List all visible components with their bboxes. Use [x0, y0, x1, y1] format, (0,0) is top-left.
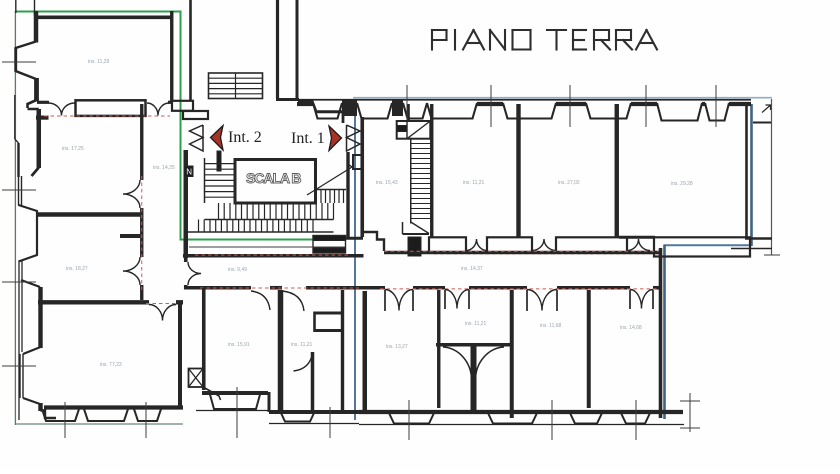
svg-text:ins. 9,49: ins. 9,49 [228, 267, 247, 273]
svg-text:Int. 1: Int. 1 [291, 130, 325, 147]
svg-text:ins. 15,91: ins. 15,91 [228, 342, 250, 348]
svg-text:ins. 14,25: ins. 14,25 [153, 165, 175, 171]
svg-text:ins. 11,29: ins. 11,29 [88, 59, 110, 65]
svg-text:ins. 14,37: ins. 14,37 [461, 266, 483, 272]
svg-text:ins. 77,23: ins. 77,23 [100, 362, 122, 368]
svg-text:ins. 29,28: ins. 29,28 [671, 181, 693, 187]
svg-text:SCALA B: SCALA B [246, 170, 302, 186]
svg-text:ins. 11,21: ins. 11,21 [465, 321, 487, 327]
svg-text:Int. 2: Int. 2 [228, 129, 262, 146]
svg-text:ins. 27,02: ins. 27,02 [558, 180, 580, 186]
svg-text:ins. 13,27: ins. 13,27 [386, 344, 408, 350]
svg-text:ins. 14,68: ins. 14,68 [620, 325, 642, 331]
svg-text:ins. 17,25: ins. 17,25 [62, 146, 84, 152]
svg-text:ins. 11,21: ins. 11,21 [291, 342, 313, 348]
svg-text:ins. 15,43: ins. 15,43 [376, 180, 398, 186]
svg-text:ins. 18,27: ins. 18,27 [66, 266, 88, 272]
svg-text:ins. 11,68: ins. 11,68 [540, 323, 562, 329]
svg-text:ins. 11,21: ins. 11,21 [463, 180, 485, 186]
svg-text:N: N [186, 168, 192, 177]
